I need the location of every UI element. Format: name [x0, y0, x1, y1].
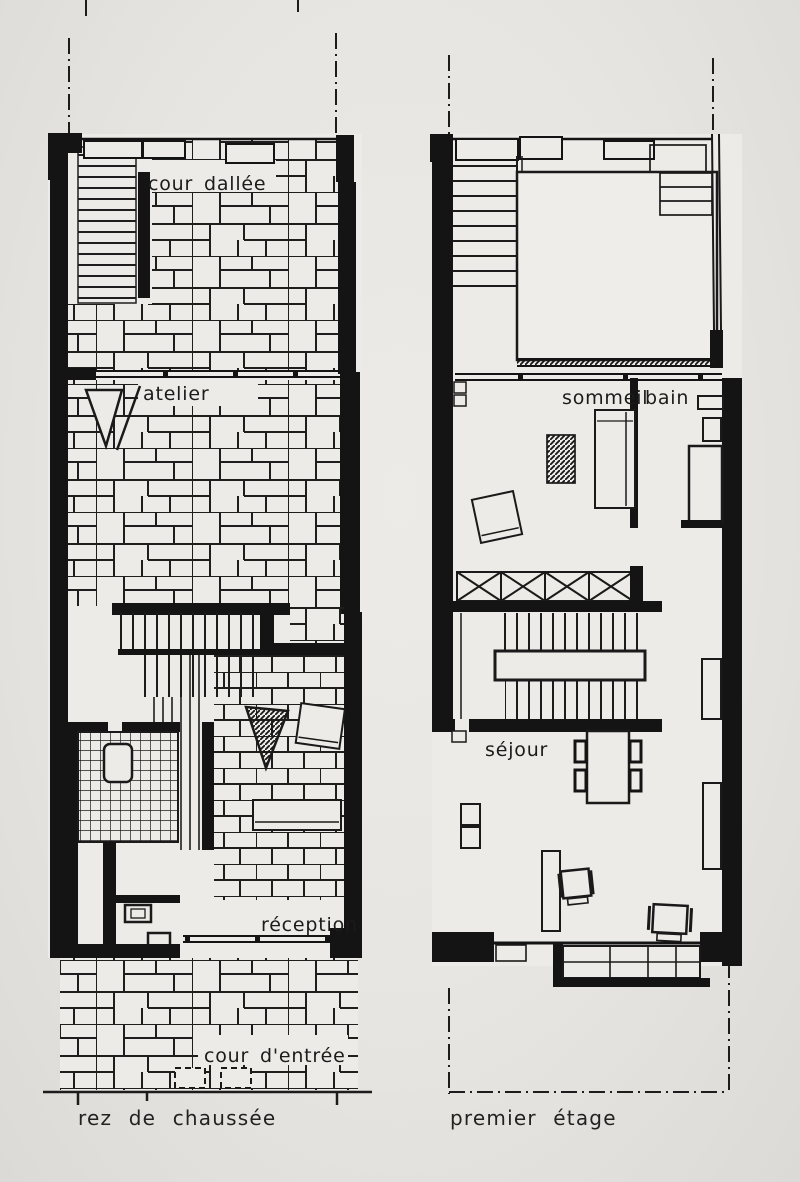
ff-cabinet	[461, 804, 480, 825]
ff-sink	[698, 396, 723, 409]
plan-ground-floor: cour dallée atelier réception cour d'ent…	[43, 0, 372, 1130]
ff-desk	[542, 851, 560, 931]
ff-left-wall	[432, 134, 453, 612]
ff-right-wall	[722, 378, 742, 966]
gf-side-table	[296, 703, 345, 749]
gf-door-mat	[221, 1068, 251, 1088]
gf-corridor-floor	[180, 655, 202, 850]
label-living-room: séjour	[485, 739, 548, 761]
ff-wall-cabinet	[703, 783, 721, 869]
label-reception: réception	[261, 914, 358, 936]
label-bath: bain	[645, 387, 689, 409]
label-entry-court: cour d'entrée	[204, 1045, 346, 1067]
gf-bench	[253, 800, 341, 830]
label-paved-court: cour dallée	[148, 173, 266, 195]
ff-cabinet	[461, 827, 480, 848]
gf-corridor-wall	[202, 722, 214, 850]
ff-wall-cabinet	[702, 659, 721, 719]
ff-gallery-wall	[452, 601, 662, 612]
ff-terrace-stairs	[453, 156, 522, 300]
floor-plans-drawing: cour dallée atelier réception cour d'ent…	[0, 0, 800, 1182]
ff-bed	[595, 410, 635, 508]
gf-reception-floor	[214, 655, 344, 936]
ff-radiator	[496, 945, 526, 961]
label-bedroom: sommeil	[562, 387, 648, 409]
gf-entry-court	[60, 958, 358, 1090]
ff-chest	[547, 435, 575, 483]
gf-pergola-slats	[78, 147, 136, 303]
gf-kitchen	[68, 722, 180, 842]
ff-toilet	[703, 418, 721, 441]
label-workshop: atelier	[143, 383, 209, 405]
gf-door-mat	[175, 1068, 205, 1088]
ff-low-table	[472, 491, 522, 543]
ff-stair-landing	[495, 651, 645, 680]
gf-kitchen-table	[104, 744, 132, 782]
caption-first-floor: premier étage	[450, 1106, 617, 1130]
gf-baseline	[43, 1092, 372, 1105]
scanned-page: cour dallée atelier réception cour d'ent…	[0, 0, 800, 1182]
plan-first-floor: sommeil bain séjour premier étage	[430, 55, 742, 1130]
ff-bathtub	[689, 446, 722, 522]
caption-ground-floor: rez de chaussée	[78, 1106, 276, 1130]
